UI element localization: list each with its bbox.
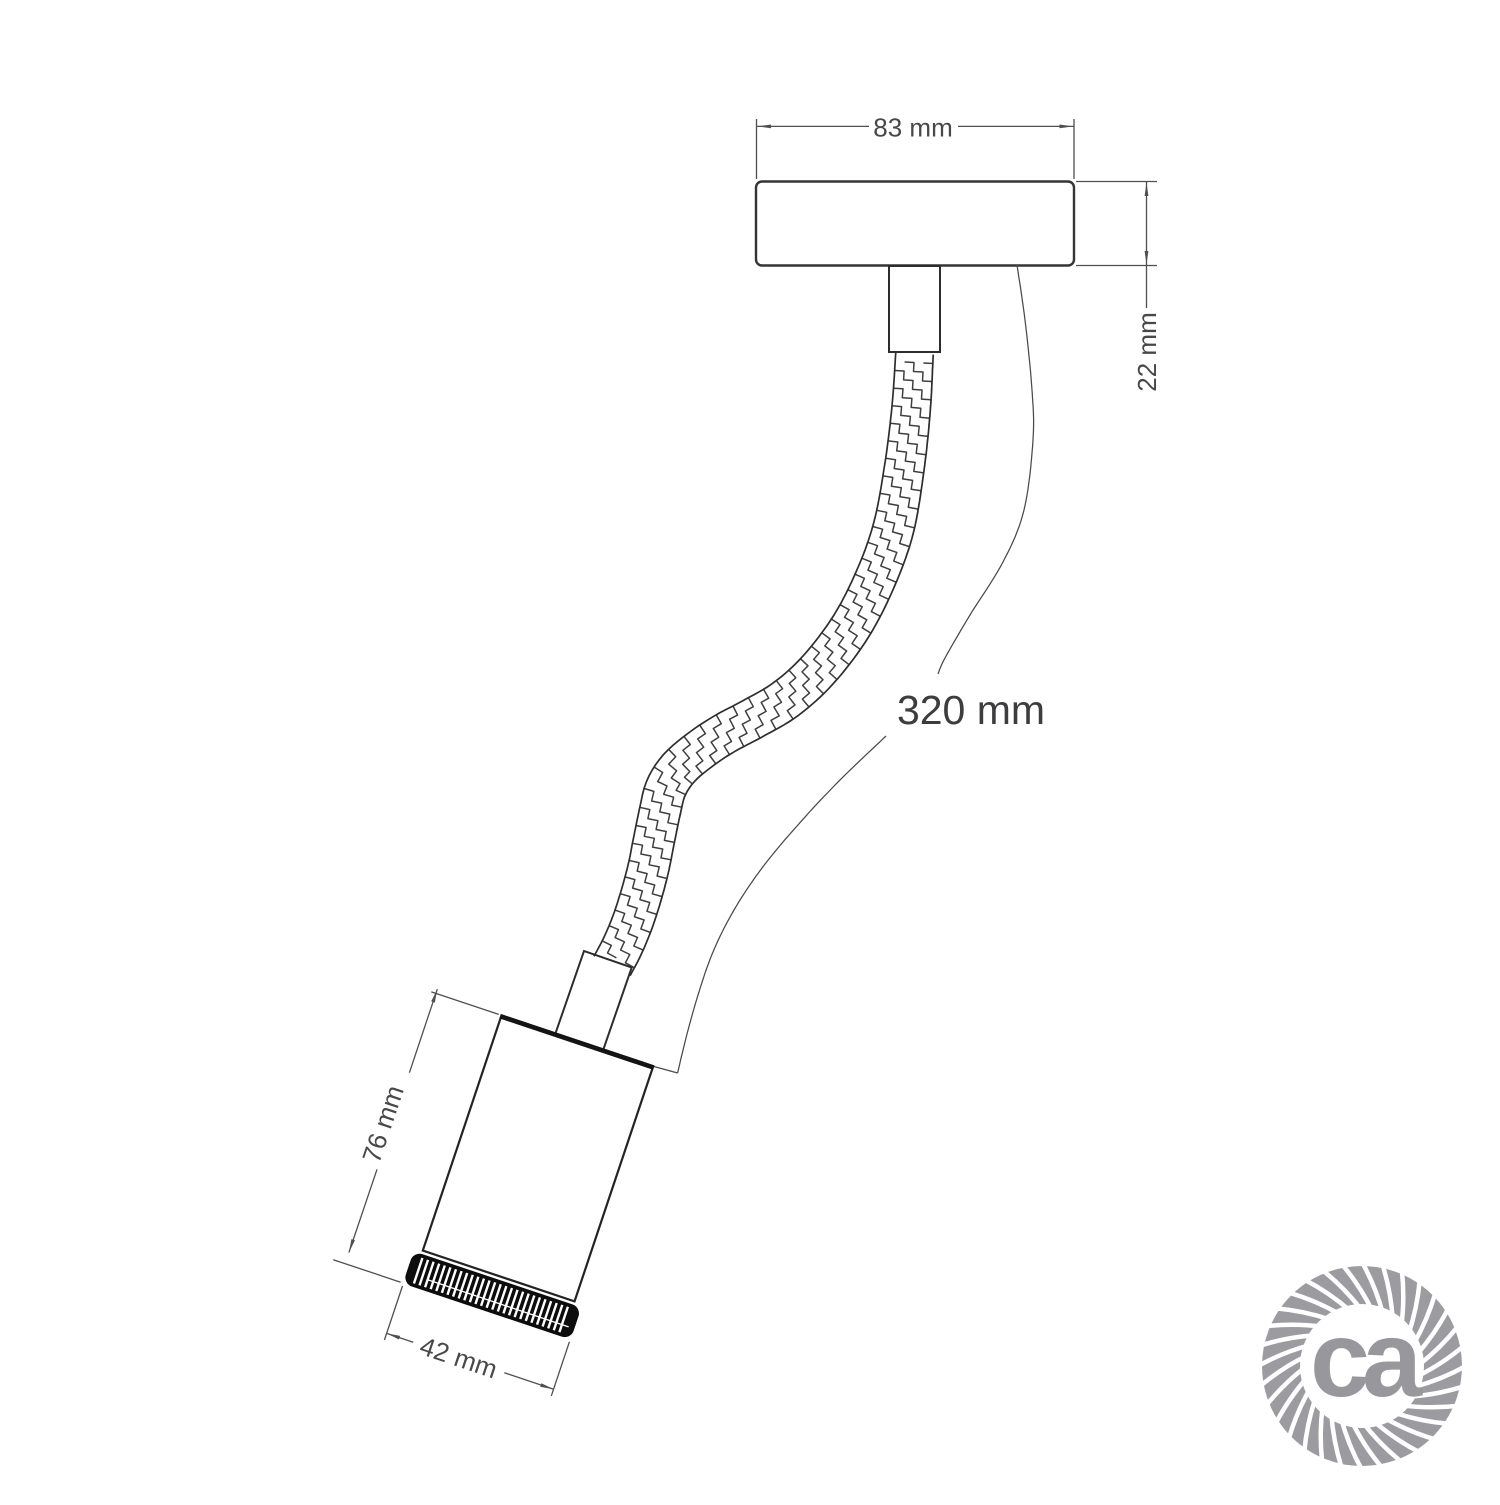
- svg-text:320 mm: 320 mm: [897, 687, 1045, 733]
- svg-text:ca: ca: [1310, 1298, 1423, 1419]
- svg-text:22 mm: 22 mm: [1132, 312, 1162, 391]
- svg-text:83 mm: 83 mm: [873, 113, 952, 143]
